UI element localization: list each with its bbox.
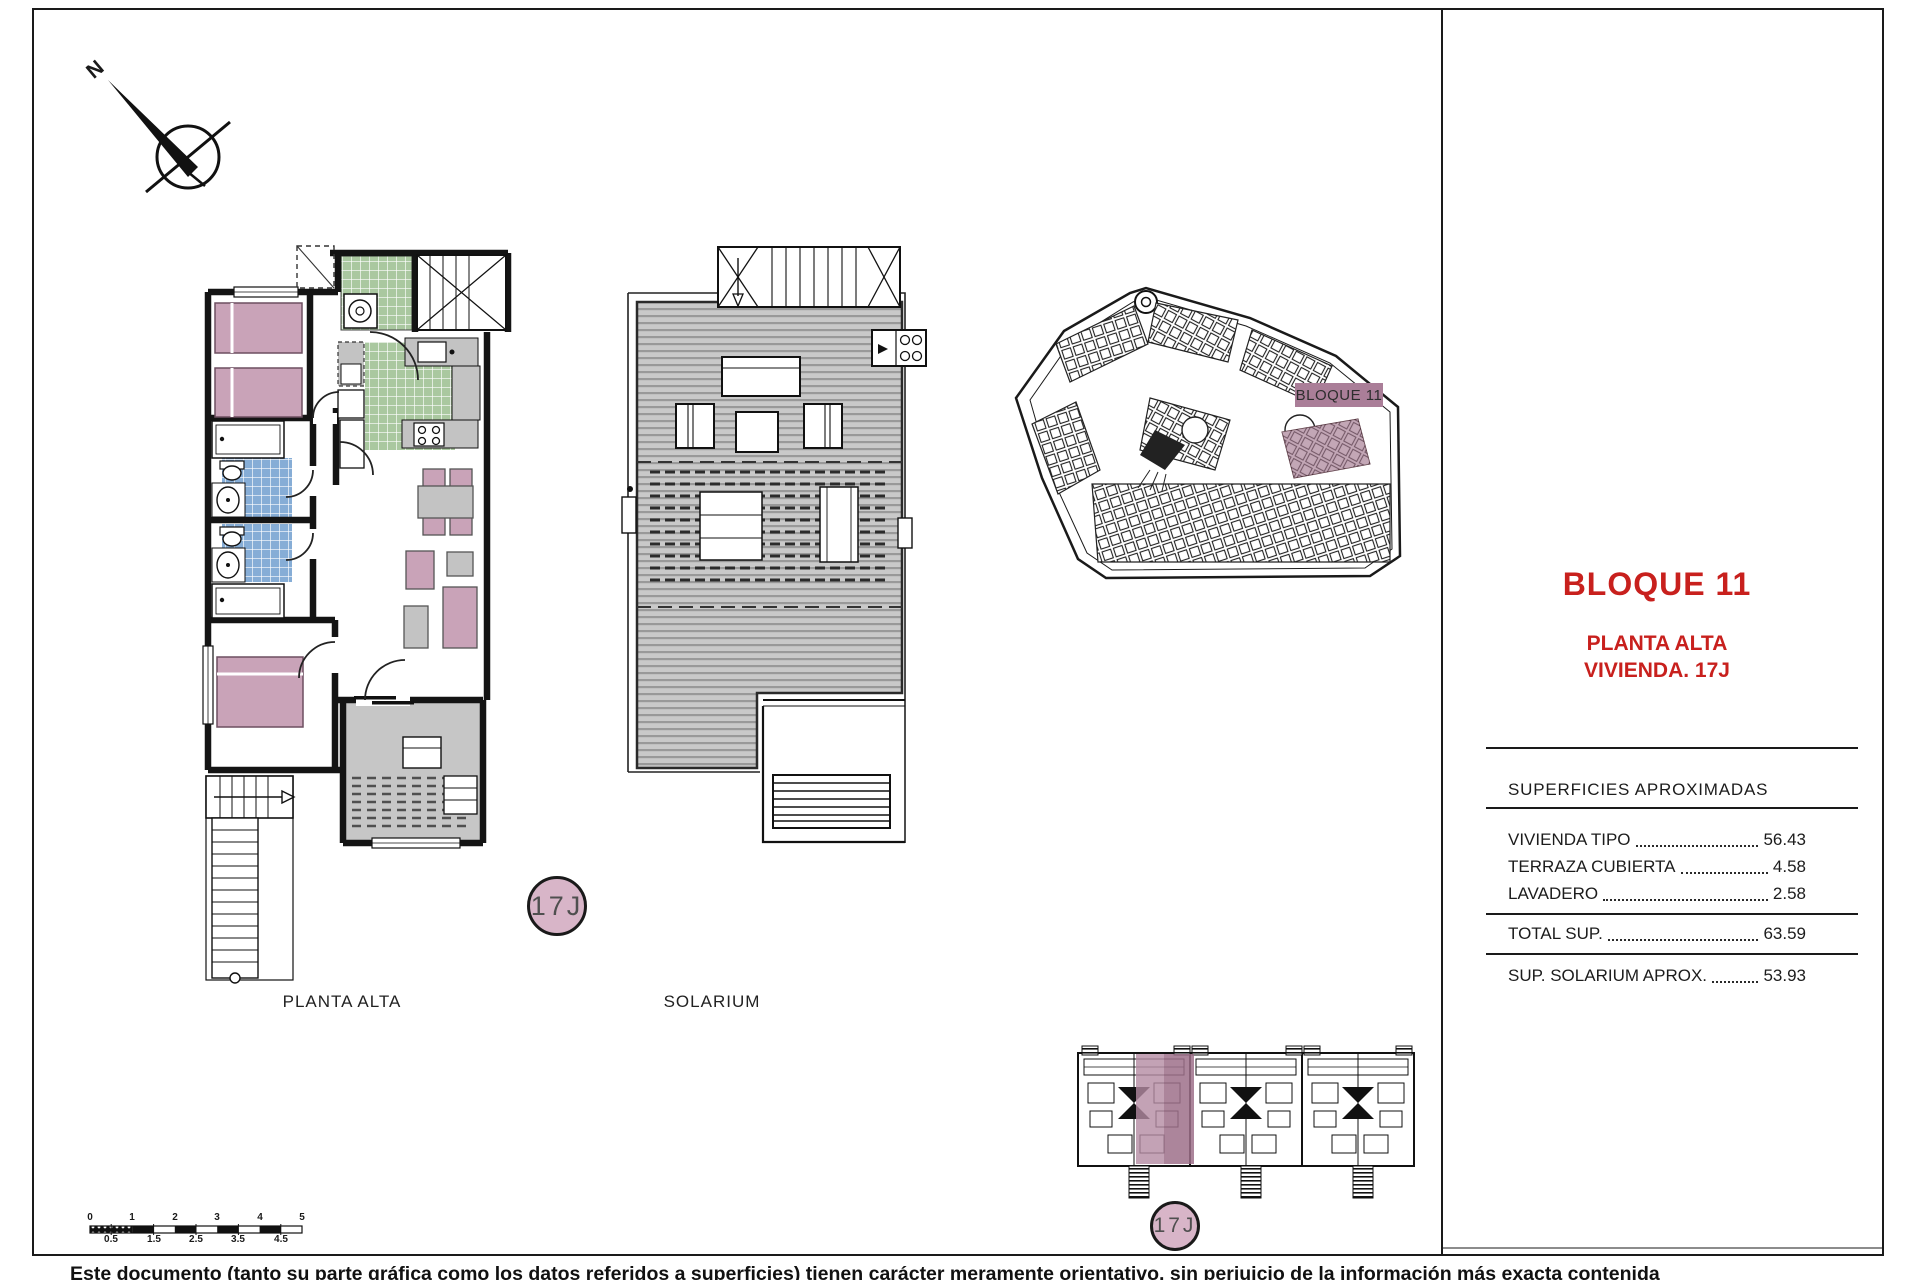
solarium-row: SUP. SOLARIUM APROX. 53.93 [1508,966,1806,986]
row-label: TERRAZA CUBIERTA [1508,857,1676,877]
dot-leader [1681,872,1768,874]
rule [1486,953,1858,955]
rule [1486,747,1858,749]
disclaimer-text: Este documento (tanto su parte gráfica c… [70,1263,1860,1280]
row-value: 56.43 [1763,830,1806,850]
solarium-caption: SOLARIUM [612,992,812,1012]
table-row: TERRAZA CUBIERTA 4.58 [1508,857,1806,877]
scale-tick: 2.5 [189,1234,203,1245]
table-row: VIVIENDA TIPO 56.43 [1508,830,1806,850]
row-value: 4.58 [1773,857,1806,877]
total-row: TOTAL SUP. 63.59 [1508,924,1806,944]
title-block: BLOQUE 11 PLANTA ALTA VIVIENDA. 17J SUPE… [1442,8,1884,1254]
floorplan-solarium [622,247,926,843]
scale-tick: 4.5 [274,1234,288,1245]
rule [1486,913,1858,915]
row-label: SUP. SOLARIUM APROX. [1508,966,1707,986]
rule [1486,807,1858,809]
row-label: TOTAL SUP. [1508,924,1603,944]
dot-leader [1712,981,1758,983]
floor-label: PLANTA ALTA [1442,630,1872,657]
scale-tick: 5 [299,1212,305,1223]
key-plan [1078,1046,1414,1198]
unit-badge-keyplan: 17J [1150,1201,1200,1251]
scale-tick: 2 [172,1212,178,1223]
table-row: LAVADERO 2.58 [1508,884,1806,904]
title-block-heading: BLOQUE 11 [1442,566,1872,603]
plan-sheet: N PLANTA ALTA SOLARIUM 17J 17J BLOQUE 11… [0,0,1920,1280]
row-label: LAVADERO [1508,884,1598,904]
scale-tick: 3.5 [231,1234,245,1245]
dot-leader [1636,845,1759,847]
row-value: 2.58 [1773,884,1806,904]
title-block-subheading: PLANTA ALTA VIVIENDA. 17J [1442,630,1872,684]
scale-tick: 1 [129,1212,135,1223]
floorplan-planta-alta [203,246,508,983]
scale-tick: 4 [257,1212,263,1223]
scale-tick: 0 [87,1212,93,1223]
dot-leader [1603,899,1768,901]
scale-tick: 1.5 [147,1234,161,1245]
unit-badge-plan: 17J [527,876,587,936]
row-value: 63.59 [1763,924,1806,944]
compass-rose [108,80,230,192]
row-value: 53.93 [1763,966,1806,986]
scale-tick: 3 [214,1212,220,1223]
site-plan [1016,288,1400,578]
row-label: VIVIENDA TIPO [1508,830,1631,850]
scale-tick: 0.5 [104,1234,118,1245]
surfaces-table: VIVIENDA TIPO 56.43 TERRAZA CUBIERTA 4.5… [1508,830,1806,911]
site-plan-block-label: BLOQUE 11 [1295,383,1383,407]
planta-alta-caption: PLANTA ALTA [242,992,442,1012]
surfaces-title: SUPERFICIES APROXIMADAS [1508,780,1768,800]
dot-leader [1608,939,1759,941]
unit-label: VIVIENDA. 17J [1442,657,1872,684]
